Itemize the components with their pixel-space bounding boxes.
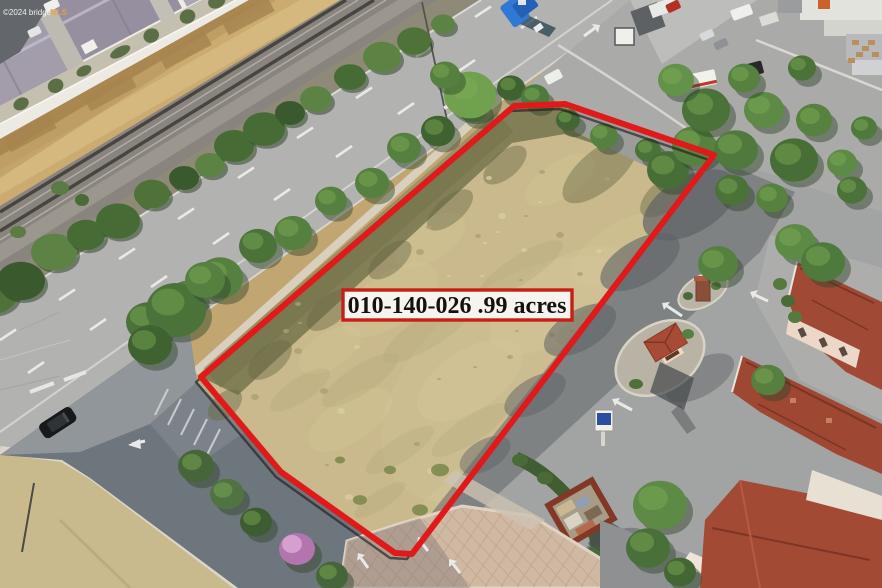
- svg-text:010-140-026 .99 acres: 010-140-026 .99 acres: [348, 293, 567, 319]
- svg-text:MLS: MLS: [50, 8, 68, 17]
- svg-text:©2024 bridge: ©2024 bridge: [3, 8, 52, 17]
